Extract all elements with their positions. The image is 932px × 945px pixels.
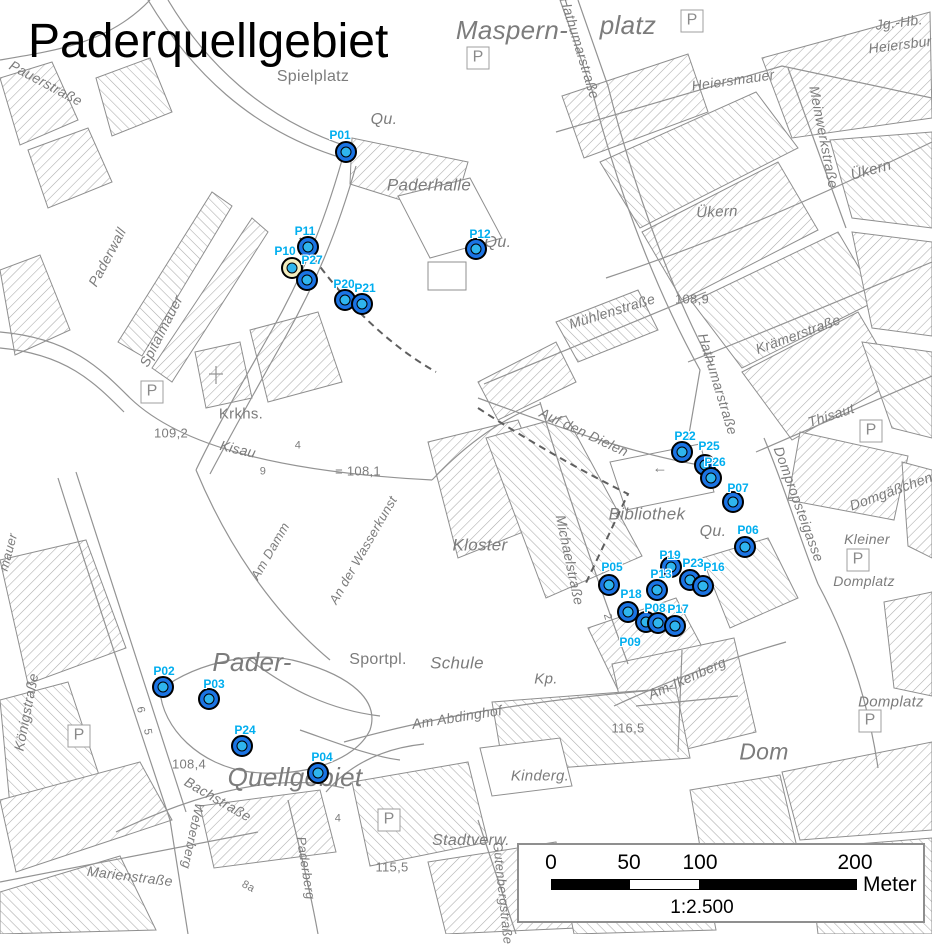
scale-segment [629, 879, 700, 890]
point-label-p27: P27 [301, 253, 322, 267]
point-core [728, 497, 739, 508]
scale-ratio-label: 1:2.500 [670, 897, 733, 919]
point-core [302, 275, 313, 286]
measurement-point-p05[interactable] [598, 574, 620, 596]
scale-tick: 100 [682, 851, 717, 875]
measurement-point-p16[interactable] [692, 575, 714, 597]
point-label-p01: P01 [329, 128, 350, 142]
point-core [158, 682, 169, 693]
point-label-p24: P24 [234, 723, 255, 737]
measurement-point-p12[interactable] [465, 238, 487, 260]
scale-unit-label: Meter [863, 873, 917, 897]
point-core [740, 542, 751, 553]
scale-tick: 0 [545, 851, 557, 875]
point-label-p25: P25 [698, 439, 719, 453]
point-core [287, 263, 298, 274]
point-core [237, 741, 248, 752]
point-label-p07: P07 [727, 481, 748, 495]
point-label-p26: P26 [704, 455, 725, 469]
point-label-p04: P04 [311, 750, 332, 764]
scale-bar: Meter 1:2.500 050100200 [517, 843, 925, 923]
measurement-point-p24[interactable] [231, 735, 253, 757]
point-core [653, 618, 664, 629]
measurement-point-p21[interactable] [351, 293, 373, 315]
measurement-point-p06[interactable] [734, 536, 756, 558]
point-core [303, 242, 314, 253]
point-label-p17: P17 [667, 602, 688, 616]
measurement-points-layer: P01P02P03P04P05P06P07P10P11P27P12P20P21P… [0, 0, 932, 934]
point-label-p23: P23 [682, 556, 703, 570]
measurement-point-p26[interactable] [700, 467, 722, 489]
point-core [604, 580, 615, 591]
point-label-p10: P10 [274, 244, 295, 258]
point-label-p16: P16 [703, 560, 724, 574]
point-core [204, 694, 215, 705]
point-label-p03: P03 [203, 677, 224, 691]
measurement-point-p04[interactable] [307, 762, 329, 784]
point-label-p22: P22 [674, 429, 695, 443]
scale-tick: 50 [617, 851, 640, 875]
point-core [357, 299, 368, 310]
measurement-point-p03[interactable] [198, 688, 220, 710]
measurement-point-p17[interactable] [664, 615, 686, 637]
point-label-p12: P12 [469, 227, 490, 241]
measurement-point-p13[interactable] [646, 579, 668, 601]
point-label-p20: P20 [333, 277, 354, 291]
point-label-p21: P21 [354, 281, 375, 295]
point-label-p02: P02 [153, 664, 174, 678]
point-core [652, 585, 663, 596]
measurement-point-p22[interactable] [671, 441, 693, 463]
point-label-p05: P05 [601, 560, 622, 574]
scale-segment [700, 879, 857, 890]
point-core [340, 295, 351, 306]
point-label-p09: P09 [619, 635, 640, 649]
point-core [471, 244, 482, 255]
point-label-p06: P06 [737, 523, 758, 537]
point-core [670, 621, 681, 632]
page-title: Paderquellgebiet [28, 14, 388, 69]
measurement-point-p01[interactable] [335, 141, 357, 163]
scale-segment [551, 879, 629, 890]
point-core [698, 581, 709, 592]
map-page: { "title": "Paderquellgebiet", "colors":… [0, 0, 932, 934]
point-label-p18: P18 [620, 587, 641, 601]
point-core [623, 607, 634, 618]
point-core [706, 473, 717, 484]
point-core [677, 447, 688, 458]
point-label-p11: P11 [295, 224, 316, 238]
scale-tick: 200 [837, 851, 872, 875]
point-label-p19: P19 [659, 548, 680, 562]
point-core [341, 147, 352, 158]
measurement-point-p02[interactable] [152, 676, 174, 698]
point-label-p13: P13 [650, 567, 671, 581]
point-core [313, 768, 324, 779]
measurement-point-p27[interactable] [296, 269, 318, 291]
